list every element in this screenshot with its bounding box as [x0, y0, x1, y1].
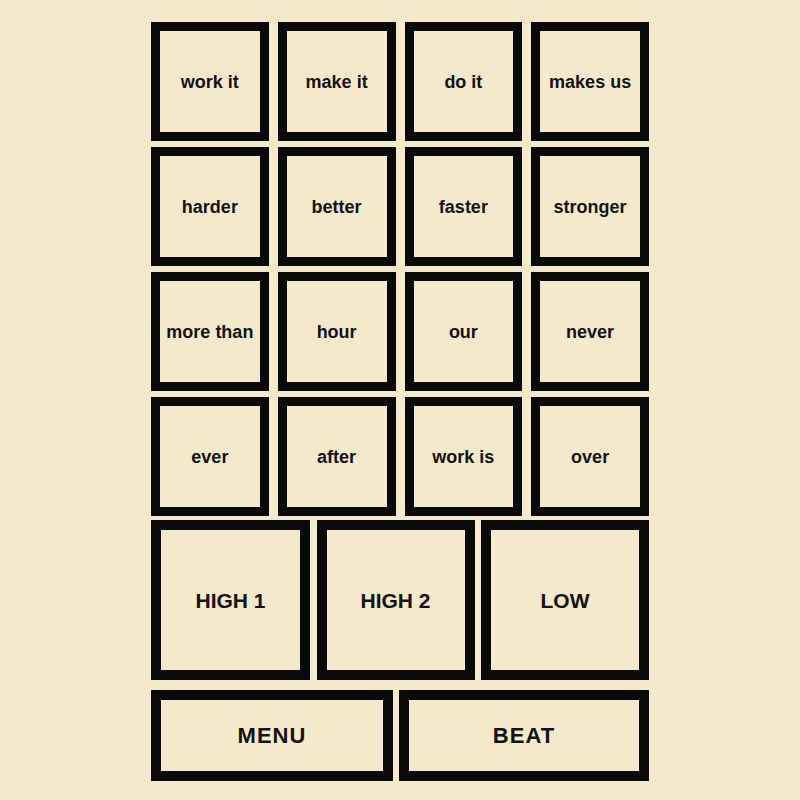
pad-do-it[interactable]: do it: [405, 22, 523, 141]
level-row: HIGH 1 HIGH 2 LOW: [151, 520, 649, 680]
pad-stronger[interactable]: stronger: [531, 147, 649, 266]
pad-more-than[interactable]: more than: [151, 272, 269, 391]
pad-beat[interactable]: BEAT: [399, 690, 649, 781]
pad-hour[interactable]: hour: [278, 272, 396, 391]
pad-harder[interactable]: harder: [151, 147, 269, 266]
pad-low[interactable]: LOW: [481, 520, 649, 680]
word-row-3: more than hour our never: [151, 272, 649, 391]
pad-faster[interactable]: faster: [405, 147, 523, 266]
pad-ever[interactable]: ever: [151, 397, 269, 516]
pad-menu[interactable]: MENU: [151, 690, 393, 781]
word-row-4: ever after work is over: [151, 397, 649, 516]
pad-work-it[interactable]: work it: [151, 22, 269, 141]
pad-makes-us[interactable]: makes us: [531, 22, 649, 141]
pad-work-is[interactable]: work is: [405, 397, 523, 516]
pad-better[interactable]: better: [278, 147, 396, 266]
pad-never[interactable]: never: [531, 272, 649, 391]
pad-high-1[interactable]: HIGH 1: [151, 520, 310, 680]
pad-make-it[interactable]: make it: [278, 22, 396, 141]
pad-after[interactable]: after: [278, 397, 396, 516]
control-row: MENU BEAT: [151, 690, 649, 781]
pad-over[interactable]: over: [531, 397, 649, 516]
word-row-1: work it make it do it makes us: [151, 22, 649, 141]
soundboard-panel: work it make it do it makes us harder be…: [151, 22, 649, 781]
pad-our[interactable]: our: [405, 272, 523, 391]
pad-high-2[interactable]: HIGH 2: [317, 520, 475, 680]
word-row-2: harder better faster stronger: [151, 147, 649, 266]
